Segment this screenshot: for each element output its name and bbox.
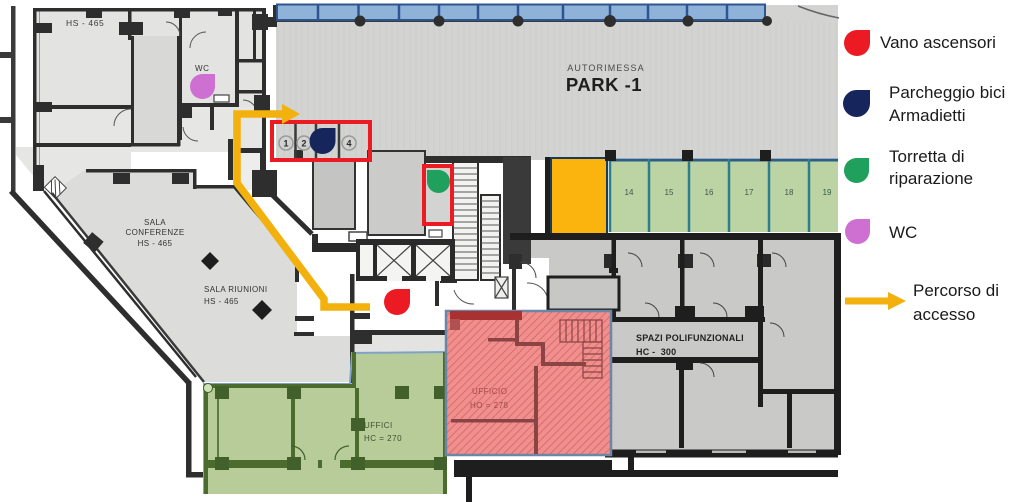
svg-text:HC = 270: HC = 270 xyxy=(364,434,402,443)
svg-text:riparazione: riparazione xyxy=(889,169,973,188)
svg-text:4: 4 xyxy=(346,139,351,149)
svg-text:UFFICIO: UFFICIO xyxy=(472,387,508,396)
svg-text:SALA RIUNIONI: SALA RIUNIONI xyxy=(204,285,267,294)
svg-text:Vano ascensori: Vano ascensori xyxy=(880,33,996,52)
svg-text:HS - 465: HS - 465 xyxy=(66,18,104,28)
svg-text:HO = 278: HO = 278 xyxy=(470,401,509,410)
svg-text:Percorso di: Percorso di xyxy=(913,281,999,300)
svg-text:Parcheggio bici: Parcheggio bici xyxy=(889,83,1005,102)
svg-text:SPAZI POLIFUNZIONALI: SPAZI POLIFUNZIONALI xyxy=(636,333,744,343)
svg-text:14: 14 xyxy=(625,188,634,197)
svg-text:WC: WC xyxy=(195,64,210,73)
svg-text:SALA: SALA xyxy=(144,218,166,227)
svg-text:HS - 465: HS - 465 xyxy=(204,297,239,306)
svg-text:Torretta di: Torretta di xyxy=(889,147,965,166)
svg-text:CONFERENZE: CONFERENZE xyxy=(125,228,184,237)
svg-text:HS - 465: HS - 465 xyxy=(138,239,173,248)
svg-text:Armadietti: Armadietti xyxy=(889,106,966,125)
svg-text:accesso: accesso xyxy=(913,305,975,324)
svg-text:16: 16 xyxy=(705,188,714,197)
svg-text:UFFICI: UFFICI xyxy=(364,421,393,430)
svg-text:1: 1 xyxy=(283,139,288,149)
svg-text:HC - 300: HC - 300 xyxy=(636,347,676,357)
svg-text:17: 17 xyxy=(745,188,754,197)
svg-text:2: 2 xyxy=(301,139,306,149)
svg-text:AUTORIMESSA: AUTORIMESSA xyxy=(567,63,644,73)
svg-text:15: 15 xyxy=(665,188,674,197)
svg-text:PARK -1: PARK -1 xyxy=(566,74,642,95)
svg-text:19: 19 xyxy=(823,188,832,197)
svg-text:18: 18 xyxy=(785,188,794,197)
svg-text:WC: WC xyxy=(889,223,917,242)
